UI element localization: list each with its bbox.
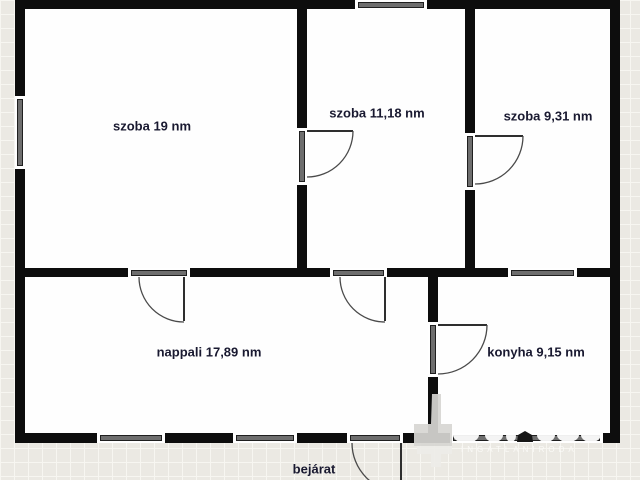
window-top-room2 [355,0,427,9]
door-threshold [131,270,187,276]
window-glass [358,2,424,8]
window-bottom-nappali-2 [233,433,297,443]
floorplan-canvas: szoba 19 nm szoba 11,18 nm szoba 9,31 nm… [0,0,640,480]
door-opening-konyha [428,322,438,377]
window-glass [236,435,294,441]
door-threshold [333,270,384,276]
window-glass [453,435,600,441]
door-arc-icon [352,443,401,480]
room-label-nappali: nappali 17,89 nm [157,345,262,360]
window-bottom-konyha [450,433,603,443]
building-floor [15,0,620,443]
wall-top [15,0,620,9]
door-threshold [430,325,436,374]
watermark-agency-text: INGATLANIRODA [461,445,621,454]
window-left-room1 [15,96,25,169]
door-threshold [350,435,400,441]
door-threshold [299,131,305,182]
window-bottom-nappali-1 [97,433,165,443]
door-opening-nappali-room2 [330,268,387,277]
window-glass [511,270,574,276]
wall-left [15,0,25,443]
window-internal-konyha-room3 [508,268,577,277]
wall-right [610,0,620,443]
door-opening-room2-room3 [465,133,475,190]
room-label-szoba1: szoba 19 nm [113,119,191,134]
door-threshold [467,136,473,187]
watermark-castle-base-icon [417,446,452,467]
door-opening-entrance [347,433,403,443]
door-opening-room1-room2 [297,128,307,185]
entrance-label: bejárat [293,462,336,477]
window-glass [17,99,23,166]
door-opening-nappali-room1 [128,268,190,277]
room-label-szoba3: szoba 9,31 nm [504,109,593,124]
room-label-szoba2: szoba 11,18 nm [329,106,424,121]
room-label-konyha: konyha 9,15 nm [487,345,585,360]
window-glass [100,435,162,441]
